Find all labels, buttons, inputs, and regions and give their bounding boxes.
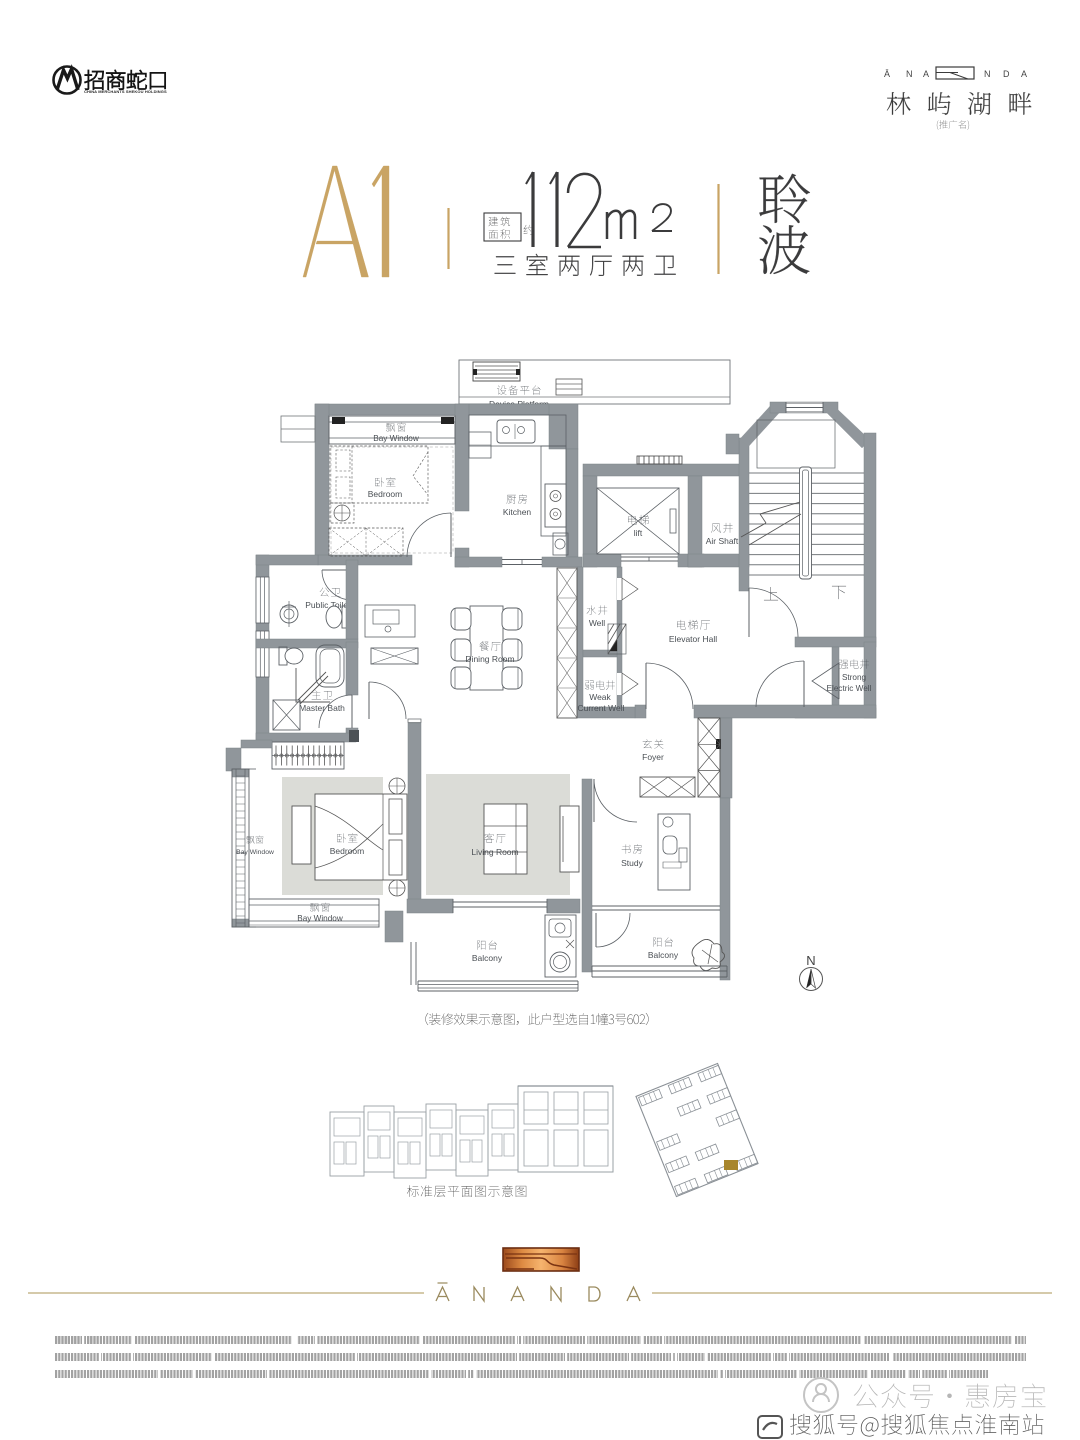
svg-text:Bedroom: Bedroom	[368, 489, 403, 499]
svg-text:Kitchen: Kitchen	[503, 507, 532, 517]
svg-text:lift: lift	[634, 528, 643, 538]
svg-text:Ā: Ā	[884, 69, 890, 79]
svg-text:Weak: Weak	[589, 692, 611, 702]
svg-text:Well: Well	[589, 618, 605, 628]
svg-text:A: A	[923, 69, 929, 79]
svg-text:Balcony: Balcony	[472, 953, 503, 963]
svg-text:N: N	[984, 69, 991, 79]
svg-text:Balcony: Balcony	[648, 950, 679, 960]
svg-text:Current Well: Current Well	[577, 703, 624, 713]
svg-text:Study: Study	[621, 858, 643, 868]
svg-text:Electric Well: Electric Well	[827, 684, 872, 693]
svg-text:Strong: Strong	[842, 673, 867, 682]
svg-text:D: D	[1003, 69, 1010, 79]
svg-text:N: N	[906, 69, 913, 79]
svg-text:Master Bath: Master Bath	[299, 703, 345, 713]
svg-text:N: N	[806, 953, 815, 968]
svg-text:Bay Window: Bay Window	[236, 849, 274, 856]
svg-text:Living Room: Living Room	[471, 847, 518, 857]
svg-text:Bay Window: Bay Window	[297, 914, 343, 923]
svg-text:Bay Window: Bay Window	[373, 434, 419, 443]
svg-text:Dining Room: Dining Room	[465, 654, 514, 664]
svg-text:CHINA MERCHANTS SHEKOU HOLDING: CHINA MERCHANTS SHEKOU HOLDINGS	[84, 89, 167, 94]
svg-text:Elevator Hall: Elevator Hall	[669, 634, 717, 644]
svg-text:Bedroom: Bedroom	[330, 846, 365, 856]
svg-text:Air Shaft: Air Shaft	[706, 536, 739, 546]
svg-text:A: A	[1021, 69, 1027, 79]
svg-text:Foyer: Foyer	[642, 752, 664, 762]
